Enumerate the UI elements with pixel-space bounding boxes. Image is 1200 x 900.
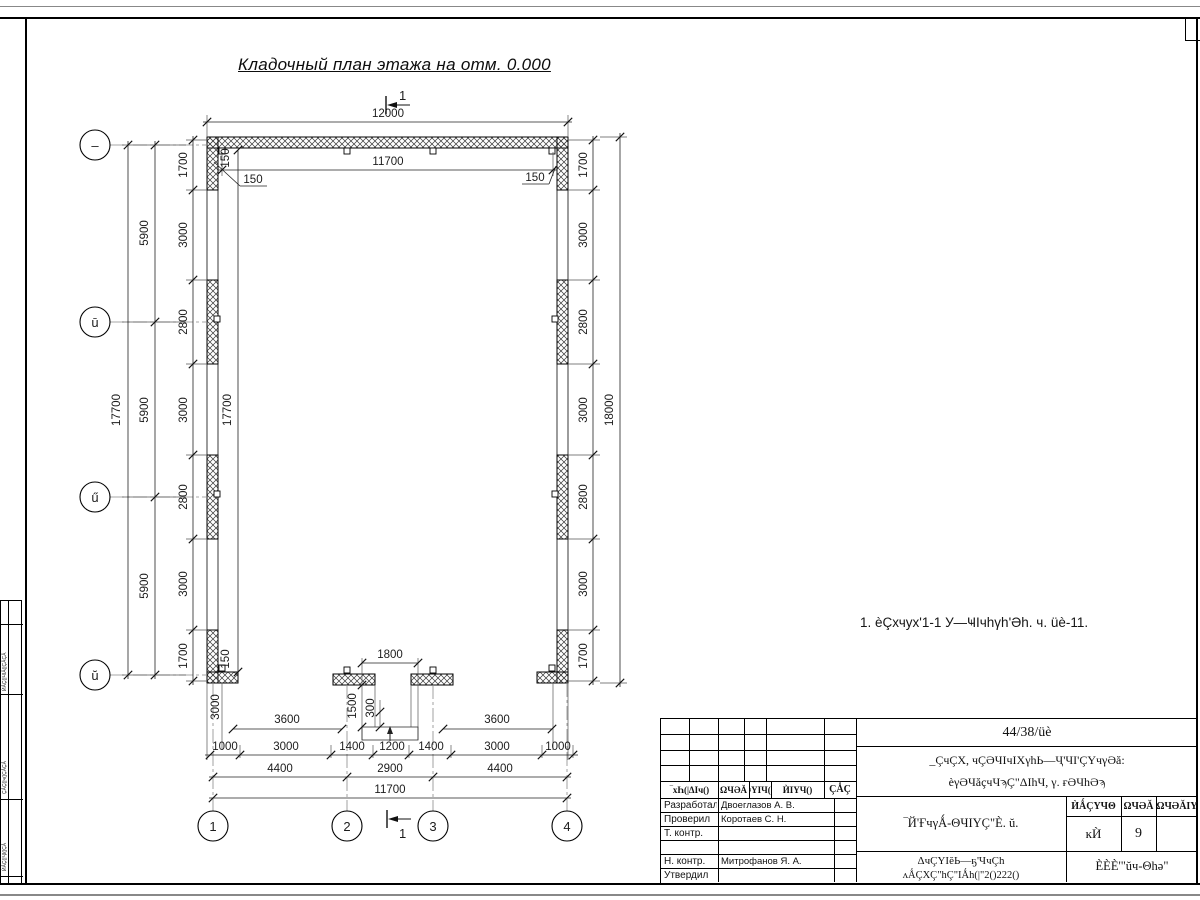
margin-label: ЍǺÇ(|ҶΙ(|ÇǺ <box>2 843 8 871</box>
dim-label: 3000 <box>178 222 190 248</box>
dim-label: 2800 <box>178 484 190 510</box>
dim-label: 2800 <box>578 309 590 335</box>
dim-label: 17700 <box>222 394 234 426</box>
left-margin-blocks: ЍǺÇ(|ЧΙǺ(|ÇǺÇǺ ÇǺÇ(|ч(|ÇǺÇǺ ЍǺÇ(|ҶΙ(|ÇǺ <box>0 600 22 884</box>
dim-label: 11700 <box>372 156 403 168</box>
dimension-lines <box>128 122 620 798</box>
dim-label: 3000 <box>578 571 590 597</box>
axis-label: 1 <box>209 819 216 834</box>
dim-label: 150 <box>220 148 232 167</box>
dim-label: 1500 <box>347 693 359 719</box>
tb-name <box>721 870 833 883</box>
dim-label: 1200 <box>379 741 405 753</box>
tb-org-line2: ʌǺÇХÇ"hÇ"ΙǺh(|"2()222() <box>856 868 1066 882</box>
dim-label: 5900 <box>139 573 151 599</box>
tb-sheet-title: ‾Й'ҒчγǺ-ΘЧΙΥÇ"È. ŭ. <box>856 796 1066 851</box>
dim-label: 1700 <box>178 152 190 178</box>
dim-label: 3000 <box>178 397 190 423</box>
dim-label: 2800 <box>578 484 590 510</box>
tb-project-line2: èγӘЧăçчЧϡÇ"ΔΙhЧ, γ. ғӘЧhӘϡ <box>856 771 1198 793</box>
section-mark-bottom: 1 <box>387 810 411 841</box>
dim-label: 17700 <box>111 394 123 426</box>
wall-marker-squares <box>214 148 558 673</box>
dim-label: 18000 <box>604 394 616 426</box>
walls-group <box>207 137 568 685</box>
dim-label: 5900 <box>139 397 151 423</box>
dim-label: 1800 <box>377 649 403 661</box>
margin-label: ÇǺÇ(|ч(|ÇǺÇǺ <box>2 761 8 794</box>
dimension-labels: 12000 11700 150 150 150 17700 5900 5900 … <box>111 108 616 796</box>
axis-label: ū <box>91 315 98 330</box>
dim-label: 1700 <box>578 643 590 669</box>
dim-label: 150 <box>220 649 232 668</box>
dim-label: 150 <box>525 172 544 184</box>
tb-col-header: ЍΙΥЧ() <box>771 781 824 798</box>
tb-sheets-header: ΩЧӘĂΙΥ <box>1156 796 1198 816</box>
axis-label: – <box>91 138 99 153</box>
tb-org-line1: ΔчÇΥΙĕЬ—ҕ'ЧчÇh <box>856 853 1066 868</box>
dim-label: 1400 <box>418 741 444 753</box>
tb-role <box>664 842 717 855</box>
tb-stage-value: ĸЍ <box>1066 816 1121 851</box>
dim-label: 12000 <box>372 108 404 120</box>
dim-label: 3600 <box>484 714 510 726</box>
dim-label: 3600 <box>274 714 300 726</box>
tb-sheet-header: ΩЧӘĂ <box>1121 796 1156 816</box>
dim-label: 1000 <box>545 741 571 753</box>
dim-label: 2800 <box>178 309 190 335</box>
dim-label: 2900 <box>377 763 403 775</box>
dim-label: 1700 <box>178 643 190 669</box>
tb-name: Митрофанов Я. А. <box>721 856 833 869</box>
tb-sheet-value: 9 <box>1121 816 1156 851</box>
dim-label: 3000 <box>578 397 590 423</box>
tb-firm: ÈÈÈ'"ŭч-Θhә" <box>1066 851 1198 882</box>
margin-label: ЍǺÇ(|ЧΙǺ(|ÇǺÇǺ <box>2 653 8 691</box>
tb-role: Утвердил <box>664 870 717 883</box>
tb-doc-number: 44/38/üè <box>856 719 1198 746</box>
tb-role: Разработал <box>664 800 717 813</box>
dim-label: 3000 <box>578 222 590 248</box>
drawing-sheet: Кладочный план этажа на отм. 0.000 1. èÇ… <box>0 0 1200 900</box>
axis-label: 3 <box>429 819 436 834</box>
tb-name <box>721 828 833 841</box>
axis-label: ű <box>91 490 98 505</box>
tb-name <box>721 842 833 855</box>
tb-col-header: ÇǺÇ <box>824 781 856 798</box>
dim-label: 150 <box>243 174 262 186</box>
dim-label: 1700 <box>578 152 590 178</box>
dim-label: 3000 <box>178 571 190 597</box>
tb-role: Т. контр. <box>664 828 717 841</box>
tb-col-header: ≈ΥΙЧ() <box>749 781 771 798</box>
tb-name: Двоеглазов А. В. <box>721 800 833 813</box>
dim-label: 300 <box>365 698 377 717</box>
tb-name: Коротаев С. Н. <box>721 814 833 827</box>
tb-sheets-value <box>1156 816 1198 851</box>
dim-label: 4400 <box>267 763 293 775</box>
wall-opening-lines <box>207 137 568 683</box>
dim-label: 3000 <box>484 741 510 753</box>
tb-role: Проверил <box>664 814 717 827</box>
dim-label: 3000 <box>210 694 222 720</box>
dim-label: 4400 <box>487 763 513 775</box>
dim-label: 11700 <box>374 784 405 796</box>
entrance-arrow-icon <box>387 726 393 741</box>
axis-label: ŭ <box>91 668 98 683</box>
section-label: 1 <box>399 88 406 103</box>
title-block: ‾хҺ(|ΔΙч() ΩЧӘĂ ≈ΥΙЧ() ЍΙΥЧ() ÇǺÇ Разраб… <box>660 718 1197 884</box>
tb-project-line1: _ÇчÇХ, чÇӘЧΙчΙХγhЬ—Ҷ'ЧΙ'ÇΥчγӘă: <box>856 749 1198 771</box>
tb-col-header: ‾хҺ(|ΔΙч() <box>661 781 718 798</box>
dim-label: 1000 <box>212 741 238 753</box>
tb-role: Н. контр. <box>664 856 717 869</box>
section-label: 1 <box>399 826 406 841</box>
tb-col-header: ΩЧӘĂ <box>718 781 749 798</box>
dim-label: 3000 <box>273 741 299 753</box>
tb-stage-header: ЍǺÇΥЧΘ <box>1066 796 1121 816</box>
axis-label: 2 <box>343 819 350 834</box>
dim-label: 1400 <box>339 741 365 753</box>
dim-label: 5900 <box>139 220 151 246</box>
axis-label: 4 <box>563 819 570 834</box>
